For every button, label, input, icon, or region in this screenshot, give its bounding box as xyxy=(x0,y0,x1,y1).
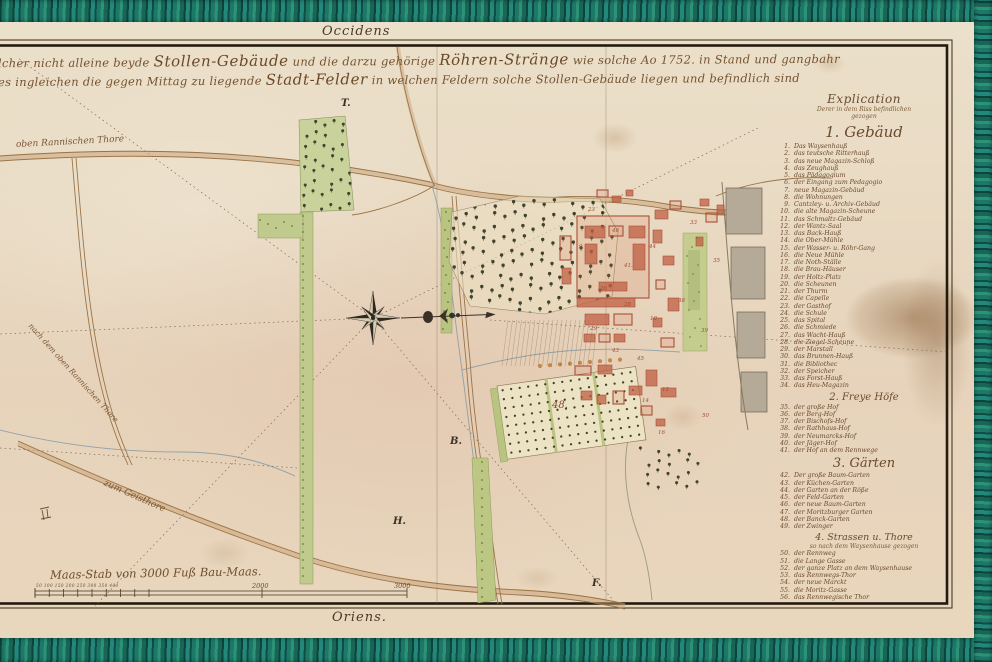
legend-item: 32.der Speicher xyxy=(779,368,949,375)
legend-item-number: 35. xyxy=(779,404,790,411)
scale-mid-number: 2000 xyxy=(252,582,269,590)
legend-item: 54.der neue Marckt xyxy=(779,579,949,586)
linen-border-right xyxy=(974,0,992,662)
legend-item-label: das Rennwegische Thor xyxy=(794,594,869,601)
building-number: 26 xyxy=(600,286,607,292)
legend-item-label: das Heu-Magazin xyxy=(794,382,849,389)
legend-item-number: 13. xyxy=(779,230,790,237)
legend-item: 5.das Pädagogium xyxy=(779,172,949,179)
field-letter: F. xyxy=(592,578,602,589)
legend-item: 27.das Wacht-Hauß xyxy=(779,332,949,339)
legend-item-label: der Hof an dem Rennwege xyxy=(794,447,878,454)
legend-item-label: der Jäger-Hof xyxy=(794,440,837,447)
legend-item: 14.die Ober-Mühle xyxy=(779,237,949,244)
legend-item-number: 16. xyxy=(779,252,790,259)
legend-item-number: 36. xyxy=(779,411,790,418)
legend-item-number: 42. xyxy=(779,472,790,479)
legend-item-label: die Schule xyxy=(794,310,827,317)
legend-item: 15.der Wasser- u. Röhr-Gang xyxy=(779,245,949,252)
legend-item: 29.der Marstall xyxy=(779,346,949,353)
legend-subheading: so nach dem Waysenhause gezogen xyxy=(779,543,949,550)
text-overlay: Occidens Oriens. lcher nicht alleine bey… xyxy=(0,0,992,662)
legend-item-number: 23. xyxy=(779,303,790,310)
legend-item-number: 2. xyxy=(779,150,790,157)
legend-item-label: die Bibliothec xyxy=(794,361,837,368)
legend-item-number: 6. xyxy=(779,179,790,186)
legend-item-number: 55. xyxy=(779,587,790,594)
building-number: 50 xyxy=(702,413,709,419)
building-number: 38 xyxy=(678,298,685,304)
legend-item-label: das Brunnen-Hauß xyxy=(794,353,853,360)
legend-item-label: der neue Marckt xyxy=(794,579,847,586)
legend-item-label: das neue Magazin-Schloß xyxy=(794,158,875,165)
title-keyword: Röhren-Stränge xyxy=(439,50,569,69)
legend-item: 47.der Moritzburger Garten xyxy=(779,509,949,516)
legend-item-number: 30. xyxy=(779,353,790,360)
legend-item: 6.der Eingang zum Pedagogio xyxy=(779,179,949,186)
legend-item: 38.der Rathhaus-Hof xyxy=(779,425,949,432)
legend-item-number: 21. xyxy=(779,288,790,295)
legend-item: 2.das teutsche Ritterhauß xyxy=(779,150,949,157)
legend-item: 30.das Brunnen-Hauß xyxy=(779,353,949,360)
legend-item: 45.der Feld-Garten xyxy=(779,494,949,501)
legend-item-number: 54. xyxy=(779,579,790,586)
legend-item-number: 27. xyxy=(779,332,790,339)
legend-item-number: 45. xyxy=(779,494,790,501)
title-keyword: Stollen-Gebäude xyxy=(154,52,289,71)
legend-item-number: 12. xyxy=(779,223,790,230)
legend-item-label: die Ziegel-Scheune xyxy=(794,339,854,346)
legend-item: 56.das Rennwegische Thor xyxy=(779,594,949,601)
legend-item-number: 56. xyxy=(779,594,790,601)
legend-item: 8.die Wohnungen xyxy=(779,194,949,201)
road-label: nach dem oben Rannischen Thore xyxy=(27,321,120,423)
legend-item-number: 31. xyxy=(779,361,790,368)
building-number: 48. xyxy=(552,400,568,411)
legend-item-label: der Bischofs-Hof xyxy=(794,418,846,425)
legend-item: 50.der Rennweg xyxy=(779,550,949,557)
legend-item-label: der Wasser- u. Röhr-Gang xyxy=(794,245,875,252)
legend-item: 16.die Neue Mühle xyxy=(779,252,949,259)
building-number: 41. xyxy=(624,263,633,269)
legend-item-number: 46. xyxy=(779,501,790,508)
legend-item: 11.das Schmaltz-Gebäud xyxy=(779,216,949,223)
legend-item-label: die Noth-Ställe xyxy=(794,259,841,266)
legend-item: 33.das Forst-Hauß xyxy=(779,375,949,382)
field-letter: H. xyxy=(393,516,406,527)
legend-item-label: die Wohnungen xyxy=(794,194,843,201)
orientation-oriens: Oriens. xyxy=(332,610,387,625)
legend-item: 43.der Küchen-Garten xyxy=(779,480,949,487)
legend-item-number: 7. xyxy=(779,187,790,194)
legend-item-label: die Moritz-Gasse xyxy=(794,587,847,594)
legend-item: 49.der Zwinger xyxy=(779,523,949,530)
building-number: 12 xyxy=(662,387,669,393)
legend-item: 4.das Zeughauß xyxy=(779,165,949,172)
legend-item: 26.die Schmiede xyxy=(779,324,949,331)
legend-item-number: 50. xyxy=(779,550,790,557)
legend-subtitle2: gezogen xyxy=(779,113,949,120)
legend-item-label: der Eingang zum Pedagogio xyxy=(794,179,882,186)
legend-item-label: der Feld-Garten xyxy=(794,494,844,501)
legend-item: 20.die Scheunen xyxy=(779,281,949,288)
legend-item-label: der Neumarcks-Hof xyxy=(794,433,856,440)
legend-item: 10.die alte Magazin-Scheune xyxy=(779,208,949,215)
legend-item-number: 53. xyxy=(779,572,790,579)
legend-item-number: 26. xyxy=(779,324,790,331)
legend-item-number: 38. xyxy=(779,425,790,432)
legend-item-label: der Gasthof xyxy=(794,303,831,310)
legend-heading: 3. Gärten xyxy=(779,456,949,471)
legend-item-number: 10. xyxy=(779,208,790,215)
title-keyword: Stadt-Felder xyxy=(266,70,368,89)
legend-item-number: 20. xyxy=(779,281,790,288)
building-number: 29 xyxy=(590,326,597,332)
legend-item-label: die Scheunen xyxy=(794,281,837,288)
building-number: 35 xyxy=(713,258,720,264)
legend-item: 52.der ganze Platz an dem Waysenhause xyxy=(779,565,949,572)
legend-item-number: 43. xyxy=(779,480,790,487)
legend-item-label: der Garten an der Röße xyxy=(794,487,869,494)
legend-item: 37.der Bischofs-Hof xyxy=(779,418,949,425)
title-text: es ingleichen die gegen Mittag zu liegen… xyxy=(0,74,266,89)
legend-item-label: der neue Baum-Garten xyxy=(794,501,866,508)
legend-item: 40.der Jäger-Hof xyxy=(779,440,949,447)
legend-item-number: 9. xyxy=(779,201,790,208)
legend-heading: 2. Freye Höfe xyxy=(779,392,949,403)
legend-item-label: das Spital xyxy=(794,317,825,324)
title-text: in welchen Feldern solche Stollen-Gebäud… xyxy=(368,71,800,87)
legend-item-number: 1. xyxy=(779,143,790,150)
photo-backdrop: Occidens Oriens. lcher nicht alleine bey… xyxy=(0,0,992,662)
legend-item: 9.Cantzley- u. Archiv-Gebäud xyxy=(779,201,949,208)
legend-item-number: 39. xyxy=(779,433,790,440)
building-number: 46 xyxy=(612,228,619,234)
legend-item-number: 25. xyxy=(779,317,790,324)
legend-item-number: 37. xyxy=(779,418,790,425)
legend-item-number: 47. xyxy=(779,509,790,516)
building-number: 10 xyxy=(650,316,657,322)
legend-item-label: Das Waysenhauß xyxy=(794,143,847,150)
legend-item-label: das Forst-Hauß xyxy=(794,375,842,382)
legend-item: 36.der Berg-Hof xyxy=(779,411,949,418)
legend-item-number: 41. xyxy=(779,447,790,454)
road-label: oben Rannischen Thore xyxy=(16,134,125,150)
scale-small-numbers: 50 100 150 200 250 300 350 400 xyxy=(36,583,119,588)
legend-item-number: 29. xyxy=(779,346,790,353)
orientation-occidens: Occidens xyxy=(322,24,390,39)
legend-item-number: 28. xyxy=(779,339,790,346)
legend-item: 35.der große Hof xyxy=(779,404,949,411)
legend-item-number: 11. xyxy=(779,216,790,223)
legend-item-label: das Pädagogium xyxy=(794,172,846,179)
legend-item-label: die alte Magazin-Scheune xyxy=(794,208,875,215)
legend-item-label: der Moritzburger Garten xyxy=(794,509,872,516)
legend-item-label: der Rathhaus-Hof xyxy=(794,425,850,432)
map-title-line2: es ingleichen die gegen Mittag zu liegen… xyxy=(0,68,800,90)
building-number: 28 xyxy=(624,302,631,308)
legend-item-label: die Schmiede xyxy=(794,324,836,331)
legend-item: 18.die Brau-Häuser xyxy=(779,266,949,273)
legend-item-label: das Back-Hauß xyxy=(794,230,841,237)
legend-item-label: der Wantz-Saal xyxy=(794,223,841,230)
legend-title: Explication xyxy=(779,92,949,106)
legend-item-label: der Rennweg xyxy=(794,550,836,557)
legend-item: 28.die Ziegel-Scheune xyxy=(779,339,949,346)
legend-item-label: der Speicher xyxy=(794,368,834,375)
legend-item-number: 4. xyxy=(779,165,790,172)
building-number: 23 xyxy=(588,207,595,213)
building-number: 14 xyxy=(642,398,649,404)
building-number: 16 xyxy=(658,430,665,436)
legend-item-label: das Wacht-Hauß xyxy=(794,332,846,339)
legend-item-label: der Berg-Hof xyxy=(794,411,835,418)
legend-item-number: 8. xyxy=(779,194,790,201)
legend-item-number: 17. xyxy=(779,259,790,266)
legend-item-label: der Holtz-Platz xyxy=(794,274,841,281)
field-letter: B. xyxy=(450,436,462,447)
legend-explication: Explication Derer in dem Riss befindlich… xyxy=(779,92,949,601)
building-number: 44 xyxy=(649,244,656,250)
legend-item-label: der Zwinger xyxy=(794,523,833,530)
legend-item: 51.die Lange Gasse xyxy=(779,558,949,565)
legend-item-label: neue Magazin-Gebäud xyxy=(794,187,864,194)
legend-heading: 4. Strassen u. Thore xyxy=(779,532,949,543)
legend-item-number: 19. xyxy=(779,274,790,281)
legend-item-number: 51. xyxy=(779,558,790,565)
title-text: wie solche Ao 1752. in Stand und gangbah… xyxy=(569,52,840,67)
legend-item-number: 32. xyxy=(779,368,790,375)
legend-item-label: die Capelle xyxy=(794,295,829,302)
legend-item-label: das Schmaltz-Gebäud xyxy=(794,216,862,223)
legend-item: 3.das neue Magazin-Schloß xyxy=(779,158,949,165)
legend-item: 24.die Schule xyxy=(779,310,949,317)
linen-border-bottom xyxy=(0,638,992,662)
legend-item-number: 18. xyxy=(779,266,790,273)
legend-item-number: 52. xyxy=(779,565,790,572)
legend-item: 1.Das Waysenhauß xyxy=(779,143,949,150)
legend-item-number: 40. xyxy=(779,440,790,447)
legend-item-label: das teutsche Ritterhauß xyxy=(794,150,870,157)
legend-subtitle: Derer in dem Riss befindlichen xyxy=(779,106,949,113)
legend-item: 23.der Gasthof xyxy=(779,303,949,310)
legend-heading: 1. Gebäud xyxy=(779,123,949,141)
legend-item-number: 3. xyxy=(779,158,790,165)
legend-item-label: der Thurm xyxy=(794,288,827,295)
building-number: 39 xyxy=(701,328,708,334)
legend-item-number: 33. xyxy=(779,375,790,382)
legend-item: 21.der Thurm xyxy=(779,288,949,295)
legend-item-label: die Lange Gasse xyxy=(794,558,846,565)
legend-item: 12.der Wantz-Saal xyxy=(779,223,949,230)
legend-item-number: 48. xyxy=(779,516,790,523)
legend-item: 55.die Moritz-Gasse xyxy=(779,587,949,594)
legend-item-label: das Zeughauß xyxy=(794,165,839,172)
legend-item: 39.der Neumarcks-Hof xyxy=(779,433,949,440)
legend-item-number: 22. xyxy=(779,295,790,302)
building-number: 45 xyxy=(637,356,644,362)
legend-item-number: 34. xyxy=(779,382,790,389)
legend-item: 41.der Hof an dem Rennwege xyxy=(779,447,949,454)
legend-item-label: die Ober-Mühle xyxy=(794,237,843,244)
road-label: zum Geisthore xyxy=(102,478,167,514)
legend-item: 17.die Noth-Ställe xyxy=(779,259,949,266)
legend-item: 7.neue Magazin-Gebäud xyxy=(779,187,949,194)
building-number: 33 xyxy=(690,220,697,226)
legend-item: 48.der Banck-Garten xyxy=(779,516,949,523)
legend-item-label: Cantzley- u. Archiv-Gebäud xyxy=(794,201,880,208)
building-number: 43 xyxy=(612,348,619,354)
legend-item: 31.die Bibliothec xyxy=(779,361,949,368)
legend-item: 34.das Heu-Magazin xyxy=(779,382,949,389)
legend-item-number: 44. xyxy=(779,487,790,494)
legend-item: 22.die Capelle xyxy=(779,295,949,302)
linen-border-top xyxy=(0,0,992,22)
title-text: lcher nicht alleine beyde xyxy=(0,55,154,70)
legend-item-label: die Brau-Häuser xyxy=(794,266,846,273)
legend-item: 44.der Garten an der Röße xyxy=(779,487,949,494)
legend-item-label: das Rennwegs-Thor xyxy=(794,572,856,579)
legend-item-label: der ganze Platz an dem Waysenhause xyxy=(794,565,912,572)
legend-item-number: 5. xyxy=(779,172,790,179)
legend-item: 19.der Holtz-Platz xyxy=(779,274,949,281)
scale-label: Maas-Stab von 3000 Fuß Bau-Maas. xyxy=(50,564,262,582)
legend-item-label: der Banck-Garten xyxy=(794,516,850,523)
field-letter: T. xyxy=(341,98,351,109)
legend-item-label: der Küchen-Garten xyxy=(794,480,854,487)
legend-sections: 1. Gebäud1.Das Waysenhauß2.das teutsche … xyxy=(779,123,949,601)
legend-item-label: der große Hof xyxy=(794,404,838,411)
legend-item-number: 15. xyxy=(779,245,790,252)
legend-item-number: 14. xyxy=(779,237,790,244)
legend-item-number: 49. xyxy=(779,523,790,530)
legend-item: 25.das Spital xyxy=(779,317,949,324)
legend-item: 13.das Back-Hauß xyxy=(779,230,949,237)
legend-item: 42.Der große Baum-Garten xyxy=(779,472,949,479)
legend-item-number: 24. xyxy=(779,310,790,317)
legend-item: 46.der neue Baum-Garten xyxy=(779,501,949,508)
building-number: 9 xyxy=(579,244,583,250)
legend-item-label: die Neue Mühle xyxy=(794,252,844,259)
title-text: und die darzu gehörige xyxy=(289,54,440,69)
scale-end-number: 3000 xyxy=(394,582,411,590)
legend-item-label: Der große Baum-Garten xyxy=(794,472,870,479)
legend-item: 53.das Rennwegs-Thor xyxy=(779,572,949,579)
legend-item-label: der Marstall xyxy=(794,346,833,353)
